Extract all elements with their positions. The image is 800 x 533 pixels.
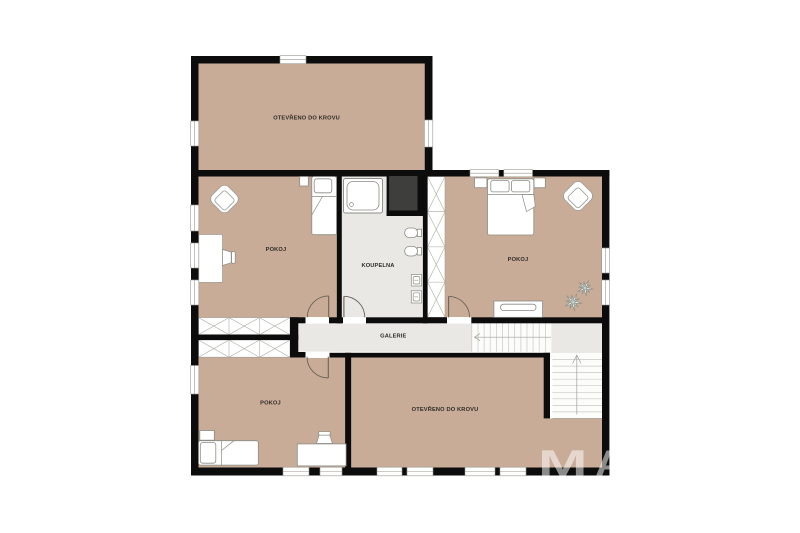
svg-text:POKOJ: POKOJ — [508, 257, 529, 263]
svg-text:OTEVŘENO DO KROVU: OTEVŘENO DO KROVU — [412, 405, 479, 413]
svg-text:M: M — [538, 443, 588, 484]
svg-text:GALERIE: GALERIE — [380, 333, 406, 339]
svg-text:KOUPELNA: KOUPELNA — [361, 263, 394, 269]
svg-text:POKOJ: POKOJ — [266, 247, 287, 253]
svg-text:OTEVŘENO DO KROVU: OTEVŘENO DO KROVU — [273, 113, 340, 121]
svg-text:A: A — [595, 443, 625, 484]
svg-text:POKOJ: POKOJ — [260, 400, 281, 406]
